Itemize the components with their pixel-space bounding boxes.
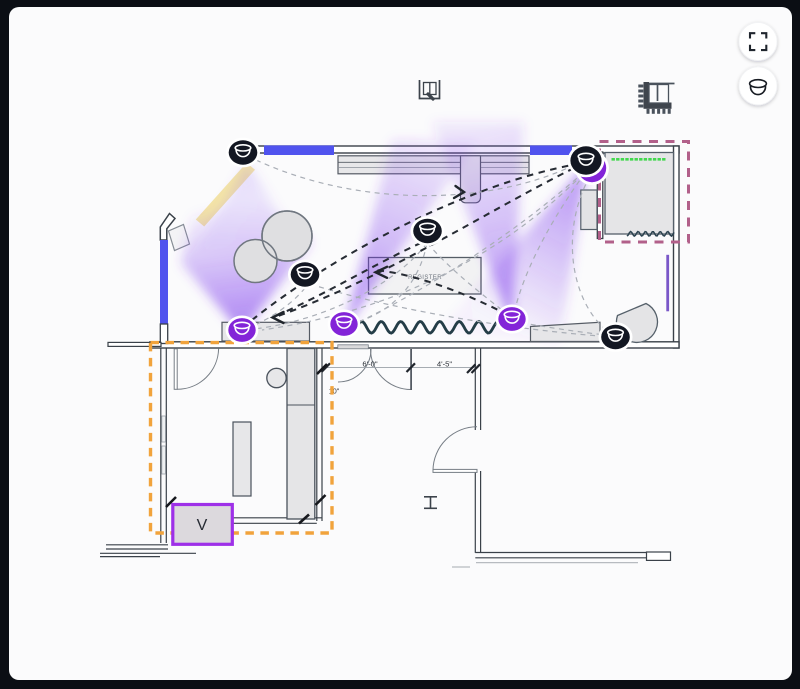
svg-text:V: V bbox=[197, 517, 208, 534]
svg-text:4'-5": 4'-5" bbox=[437, 359, 453, 368]
svg-text:6'-0": 6'-0" bbox=[362, 360, 378, 369]
